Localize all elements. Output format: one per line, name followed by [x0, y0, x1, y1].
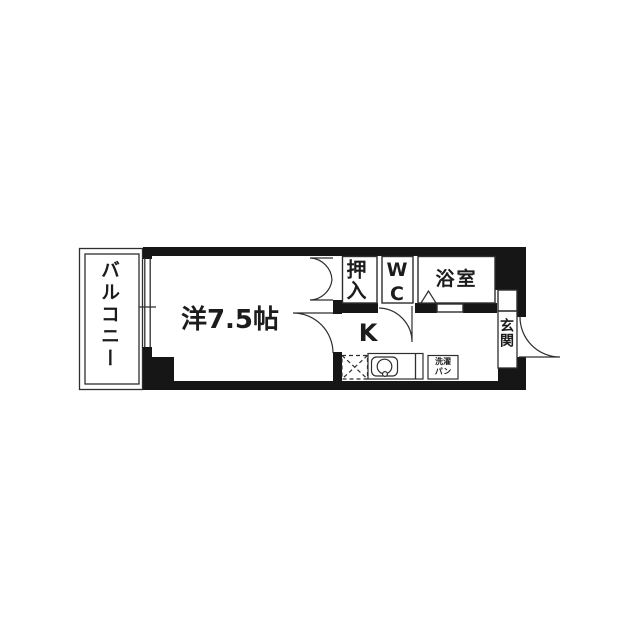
kitchen-sink-drain — [383, 372, 388, 377]
wall-corner-bottom-right — [498, 368, 526, 390]
wall-room-divider-mid — [333, 300, 342, 314]
washer-pan-label-line1: 洗濯 — [428, 357, 458, 367]
bath-label: 浴室 — [418, 268, 495, 290]
wall-top — [143, 247, 526, 256]
kitchen-label: K — [348, 320, 388, 347]
washer-pan-label-line2: パン — [428, 367, 458, 377]
wall-corner-top-right — [495, 256, 517, 290]
wall-under-closet — [342, 303, 378, 313]
entrance-cabinet-outline — [498, 290, 517, 311]
entrance-label: 玄関 — [500, 318, 516, 368]
main-room-label: 洋7.5帖 — [150, 305, 310, 335]
balcony-label: バルコニー — [100, 260, 123, 384]
wall-bottom — [143, 381, 526, 390]
bath-door-panel — [437, 304, 463, 312]
entrance-door — [519, 317, 560, 357]
wall-left-above-window — [143, 247, 152, 259]
toilet-label: WC — [388, 259, 408, 304]
wall-room-divider-lower — [333, 352, 342, 381]
floorplan-canvas: バルコニー 洋7.5帖 押入 WC 浴室 K 玄関 洗濯 パン — [0, 0, 640, 640]
closet-label: 押入 — [349, 259, 370, 304]
closet-double-door — [310, 258, 333, 300]
washer-pan-label: 洗濯 パン — [428, 357, 458, 376]
wall-under-bath-right — [463, 303, 497, 313]
wall-step-bottom-left — [143, 357, 174, 381]
wall-under-bath-left — [415, 303, 437, 313]
wall-right-upper — [517, 247, 526, 317]
